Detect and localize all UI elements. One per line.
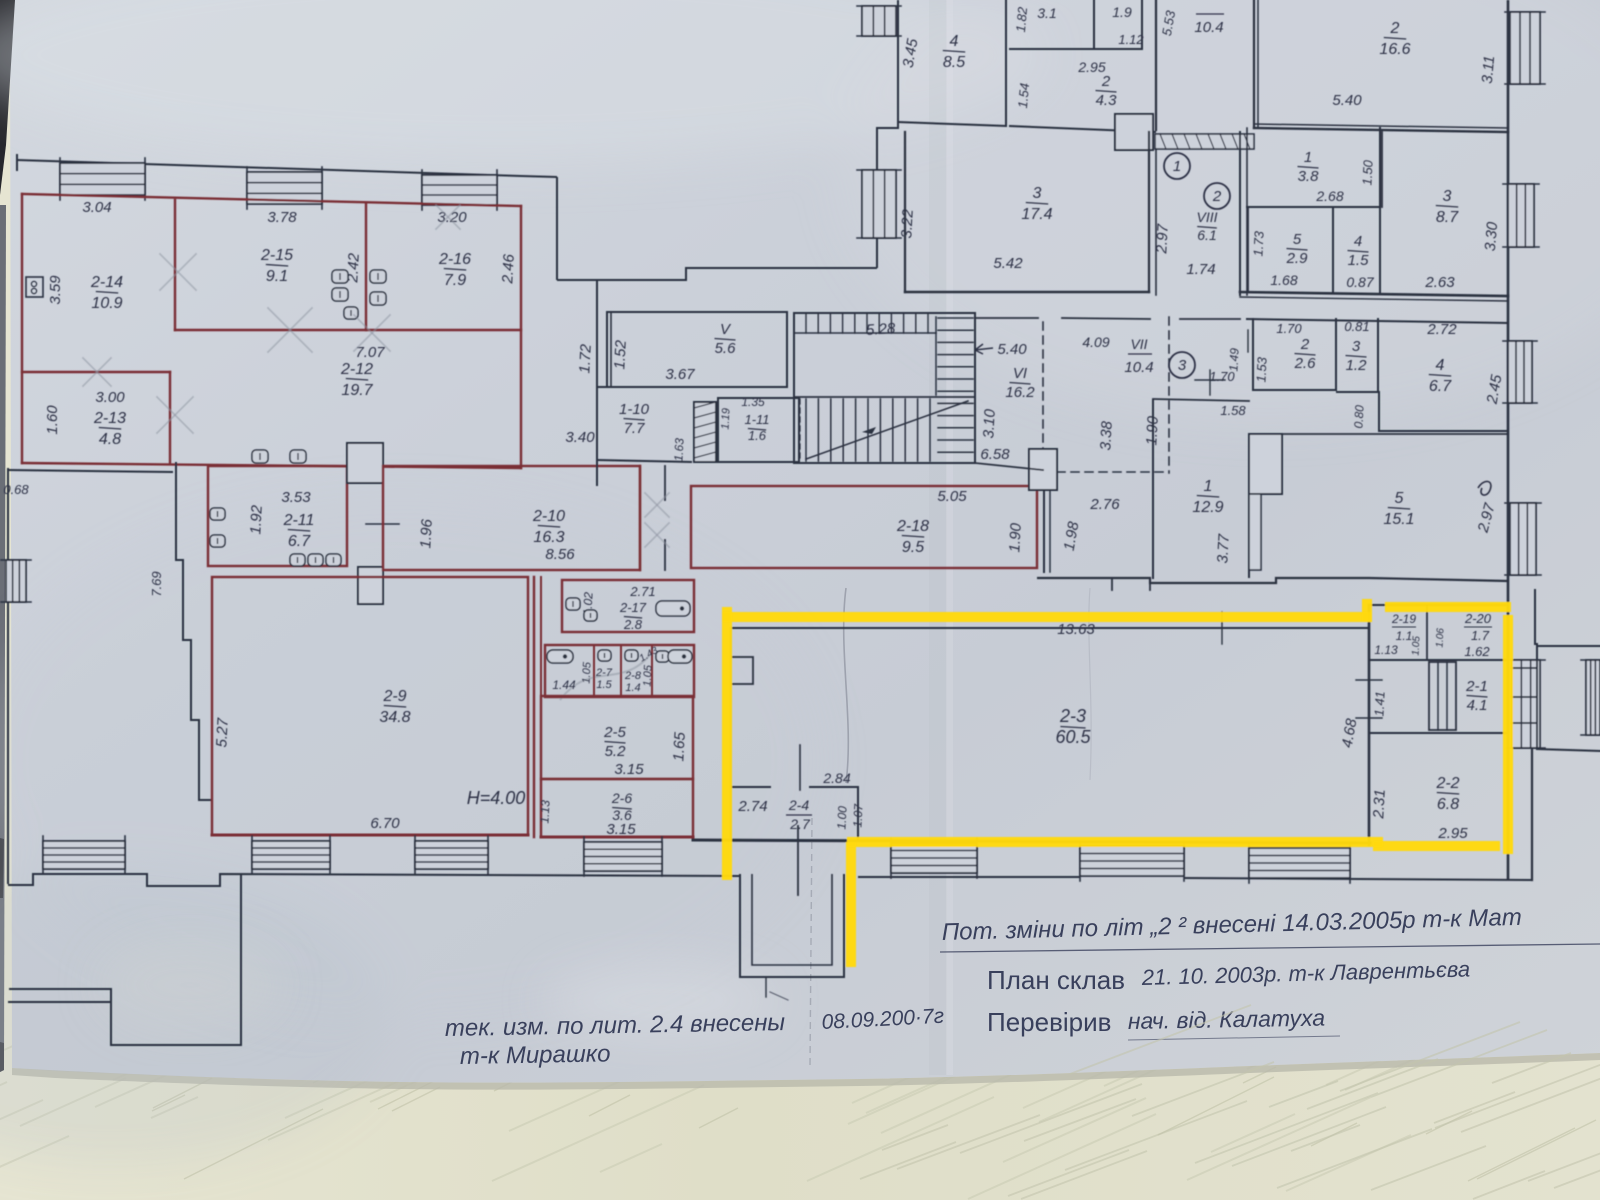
svg-text:1.60: 1.60 <box>44 405 61 435</box>
svg-text:1.07: 1.07 <box>850 802 865 827</box>
svg-text:3.40: 3.40 <box>565 429 595 446</box>
svg-text:1.2: 1.2 <box>1346 357 1368 374</box>
svg-text:2-11: 2-11 <box>283 512 315 529</box>
svg-text:2-6: 2-6 <box>611 790 632 806</box>
svg-text:10.4: 10.4 <box>1194 19 1223 36</box>
svg-text:9.5: 9.5 <box>902 539 924 556</box>
svg-text:2: 2 <box>1212 188 1222 205</box>
svg-text:4.3: 4.3 <box>1096 92 1118 109</box>
svg-text:12.9: 12.9 <box>1192 499 1223 516</box>
svg-text:6.8: 6.8 <box>1437 796 1459 813</box>
svg-text:5.27: 5.27 <box>213 717 232 748</box>
svg-text:1.1: 1.1 <box>1396 629 1413 643</box>
svg-text:8.5: 8.5 <box>943 54 965 71</box>
svg-text:2.72: 2.72 <box>1426 321 1457 338</box>
svg-text:1.44: 1.44 <box>552 678 576 692</box>
svg-text:4: 4 <box>950 33 959 50</box>
svg-text:1.62: 1.62 <box>1464 644 1490 659</box>
svg-text:2-3: 2-3 <box>1059 706 1086 726</box>
svg-text:3.10: 3.10 <box>980 408 999 439</box>
svg-text:7.9: 7.9 <box>444 272 466 289</box>
svg-text:1.58: 1.58 <box>1220 403 1246 418</box>
svg-text:8.7: 8.7 <box>1436 209 1459 226</box>
svg-text:1: 1 <box>1204 478 1213 495</box>
svg-text:1.82: 1.82 <box>1013 6 1030 33</box>
svg-text:2.76: 2.76 <box>1089 496 1120 513</box>
svg-text:1: 1 <box>1173 158 1181 175</box>
svg-text:2.71: 2.71 <box>629 584 655 599</box>
svg-text:2.84: 2.84 <box>822 770 850 786</box>
svg-text:1.5: 1.5 <box>596 679 612 691</box>
svg-text:3.38: 3.38 <box>1097 420 1116 451</box>
svg-text:3: 3 <box>1033 185 1042 202</box>
svg-text:60.5: 60.5 <box>1055 727 1091 747</box>
svg-text:3.59: 3.59 <box>47 275 64 305</box>
svg-text:VIII: VIII <box>1196 209 1217 225</box>
svg-text:5.40: 5.40 <box>1332 92 1362 109</box>
svg-text:1.70: 1.70 <box>1276 321 1302 336</box>
svg-text:3.15: 3.15 <box>606 821 636 838</box>
svg-text:2: 2 <box>1300 336 1310 353</box>
svg-text:8.56: 8.56 <box>545 546 575 563</box>
svg-text:16.2: 16.2 <box>1005 384 1035 401</box>
svg-text:0.68: 0.68 <box>3 482 29 497</box>
svg-text:1.13: 1.13 <box>537 799 552 823</box>
svg-text:2-10: 2-10 <box>532 508 565 525</box>
svg-text:7.07: 7.07 <box>355 344 385 361</box>
svg-text:19.7: 19.7 <box>341 382 373 399</box>
svg-text:План склав: План склав <box>987 965 1125 995</box>
svg-text:1.05: 1.05 <box>1411 635 1423 655</box>
svg-text:2.97: 2.97 <box>1153 223 1172 255</box>
svg-text:1.49: 1.49 <box>1226 347 1241 371</box>
svg-text:4.8: 4.8 <box>99 431 121 448</box>
svg-text:13.63: 13.63 <box>1057 621 1095 638</box>
svg-text:3.15: 3.15 <box>614 761 644 778</box>
svg-text:3.00: 3.00 <box>95 389 125 406</box>
svg-text:1.19: 1.19 <box>719 408 732 430</box>
svg-text:5.28: 5.28 <box>866 320 897 339</box>
svg-text:3.53: 3.53 <box>281 489 311 506</box>
svg-text:1.05: 1.05 <box>641 664 654 687</box>
svg-text:6.7: 6.7 <box>1429 378 1452 395</box>
svg-text:2-14: 2-14 <box>90 274 123 291</box>
svg-text:VII: VII <box>1130 336 1147 352</box>
svg-text:5.05: 5.05 <box>937 488 967 505</box>
svg-text:7.7: 7.7 <box>624 420 646 437</box>
svg-text:2: 2 <box>1390 20 1400 37</box>
svg-text:2.31: 2.31 <box>1370 789 1389 820</box>
svg-text:6.70: 6.70 <box>370 815 400 832</box>
svg-text:5.40: 5.40 <box>997 341 1027 358</box>
svg-text:3.04: 3.04 <box>82 199 111 216</box>
svg-text:5.2: 5.2 <box>605 743 627 760</box>
svg-text:2-19: 2-19 <box>1391 612 1416 626</box>
svg-text:2.9: 2.9 <box>1286 250 1309 267</box>
svg-text:3.1: 3.1 <box>1037 5 1056 21</box>
svg-text:2.6: 2.6 <box>1294 355 1317 372</box>
svg-text:10.4: 10.4 <box>1124 359 1153 376</box>
svg-text:3.11: 3.11 <box>1479 55 1498 84</box>
svg-text:1.74: 1.74 <box>1186 261 1215 278</box>
svg-text:1.05: 1.05 <box>580 661 593 684</box>
svg-text:3: 3 <box>1178 357 1187 374</box>
svg-text:1.65: 1.65 <box>670 731 689 762</box>
svg-text:3: 3 <box>1443 188 1452 205</box>
svg-text:1-11: 1-11 <box>744 412 769 427</box>
svg-text:VI: VI <box>1013 365 1027 382</box>
svg-text:1.63: 1.63 <box>671 437 686 461</box>
svg-text:1.6: 1.6 <box>748 428 767 443</box>
svg-text:1.41: 1.41 <box>1371 691 1387 717</box>
svg-text:5: 5 <box>1293 231 1302 248</box>
svg-text:1.7: 1.7 <box>1471 628 1490 643</box>
svg-text:2.68: 2.68 <box>1315 188 1343 204</box>
svg-text:16.6: 16.6 <box>1379 41 1410 58</box>
svg-text:3.78: 3.78 <box>267 209 297 226</box>
svg-text:6.58: 6.58 <box>980 446 1010 463</box>
svg-text:2.46: 2.46 <box>499 253 518 285</box>
svg-text:1.13: 1.13 <box>1374 643 1398 657</box>
svg-text:1.4: 1.4 <box>625 682 640 694</box>
svg-text:2: 2 <box>1101 73 1111 90</box>
svg-text:2-5: 2-5 <box>603 724 626 741</box>
svg-text:6.7: 6.7 <box>288 533 311 550</box>
svg-text:2-9: 2-9 <box>382 688 406 705</box>
svg-text:1.92: 1.92 <box>247 504 266 535</box>
svg-text:5.42: 5.42 <box>993 255 1023 272</box>
svg-text:2.95: 2.95 <box>1437 825 1468 842</box>
svg-text:1.72: 1.72 <box>576 343 595 374</box>
svg-text:Перевірив: Перевірив <box>987 1007 1111 1037</box>
svg-text:2-17: 2-17 <box>619 600 647 615</box>
svg-text:10.9: 10.9 <box>91 295 122 312</box>
svg-text:34.8: 34.8 <box>379 709 410 726</box>
svg-text:2-8: 2-8 <box>624 670 642 682</box>
svg-text:3.67: 3.67 <box>665 366 695 383</box>
svg-text:0.80: 0.80 <box>1351 404 1366 428</box>
svg-text:1.96: 1.96 <box>417 518 436 549</box>
svg-text:2-7: 2-7 <box>595 667 613 679</box>
svg-text:2-15: 2-15 <box>260 247 293 264</box>
svg-text:0.87: 0.87 <box>1346 274 1374 290</box>
svg-text:9.1: 9.1 <box>266 268 288 285</box>
svg-text:5.6: 5.6 <box>715 340 737 357</box>
svg-text:1.00: 1.00 <box>834 805 849 829</box>
svg-text:4: 4 <box>1354 233 1362 250</box>
svg-text:3.22: 3.22 <box>898 208 917 239</box>
svg-text:17.4: 17.4 <box>1021 206 1052 223</box>
svg-text:2-12: 2-12 <box>340 361 373 378</box>
svg-text:1.06: 1.06 <box>1435 627 1447 647</box>
svg-text:1.5: 1.5 <box>1348 252 1370 269</box>
svg-text:3.77: 3.77 <box>1214 533 1233 564</box>
svg-text:2-16: 2-16 <box>438 251 471 268</box>
svg-text:4: 4 <box>1436 357 1445 374</box>
svg-text:H=4.00: H=4.00 <box>467 788 526 808</box>
svg-text:1: 1 <box>1304 149 1312 166</box>
svg-text:2.7: 2.7 <box>789 816 811 832</box>
svg-text:2-20: 2-20 <box>1464 611 1492 626</box>
svg-text:4.1: 4.1 <box>1467 697 1488 714</box>
svg-text:3.30: 3.30 <box>1482 221 1502 252</box>
svg-text:3: 3 <box>1352 338 1361 355</box>
svg-text:1.9: 1.9 <box>1112 4 1132 20</box>
svg-text:2-4: 2-4 <box>788 797 809 813</box>
svg-text:1.73: 1.73 <box>1250 230 1266 257</box>
svg-text:1.53: 1.53 <box>1253 356 1269 383</box>
svg-text:1.12: 1.12 <box>1118 32 1144 47</box>
svg-text:1.52: 1.52 <box>611 339 630 370</box>
svg-text:4.09: 4.09 <box>1082 334 1109 350</box>
svg-text:2-18: 2-18 <box>896 518 929 535</box>
svg-text:3.8: 3.8 <box>1298 168 1320 185</box>
svg-text:7.69: 7.69 <box>149 571 164 596</box>
svg-text:нач. від. Калатуха: нач. від. Калатуха <box>1128 1005 1326 1034</box>
svg-text:2.74: 2.74 <box>737 798 767 815</box>
svg-text:т-к Мирашко: т-к Мирашко <box>460 1040 611 1070</box>
svg-text:1-10: 1-10 <box>619 401 650 418</box>
svg-text:1.50: 1.50 <box>1359 159 1375 186</box>
svg-text:16.3: 16.3 <box>533 529 564 546</box>
svg-text:2.63: 2.63 <box>1424 274 1455 291</box>
svg-text:6.1: 6.1 <box>1197 227 1216 243</box>
svg-text:1.90: 1.90 <box>1006 522 1025 553</box>
svg-text:0.81: 0.81 <box>1344 319 1369 334</box>
svg-text:2-1: 2-1 <box>1465 678 1488 695</box>
svg-text:1.68: 1.68 <box>1270 272 1297 288</box>
svg-text:5: 5 <box>1395 490 1404 507</box>
svg-text:1.54: 1.54 <box>1015 82 1032 109</box>
svg-text:1.35: 1.35 <box>741 395 765 409</box>
svg-text:15.1: 15.1 <box>1383 511 1414 528</box>
svg-text:2-2: 2-2 <box>1435 775 1459 792</box>
svg-text:2-13: 2-13 <box>93 410 126 427</box>
svg-text:2.8: 2.8 <box>623 617 643 632</box>
